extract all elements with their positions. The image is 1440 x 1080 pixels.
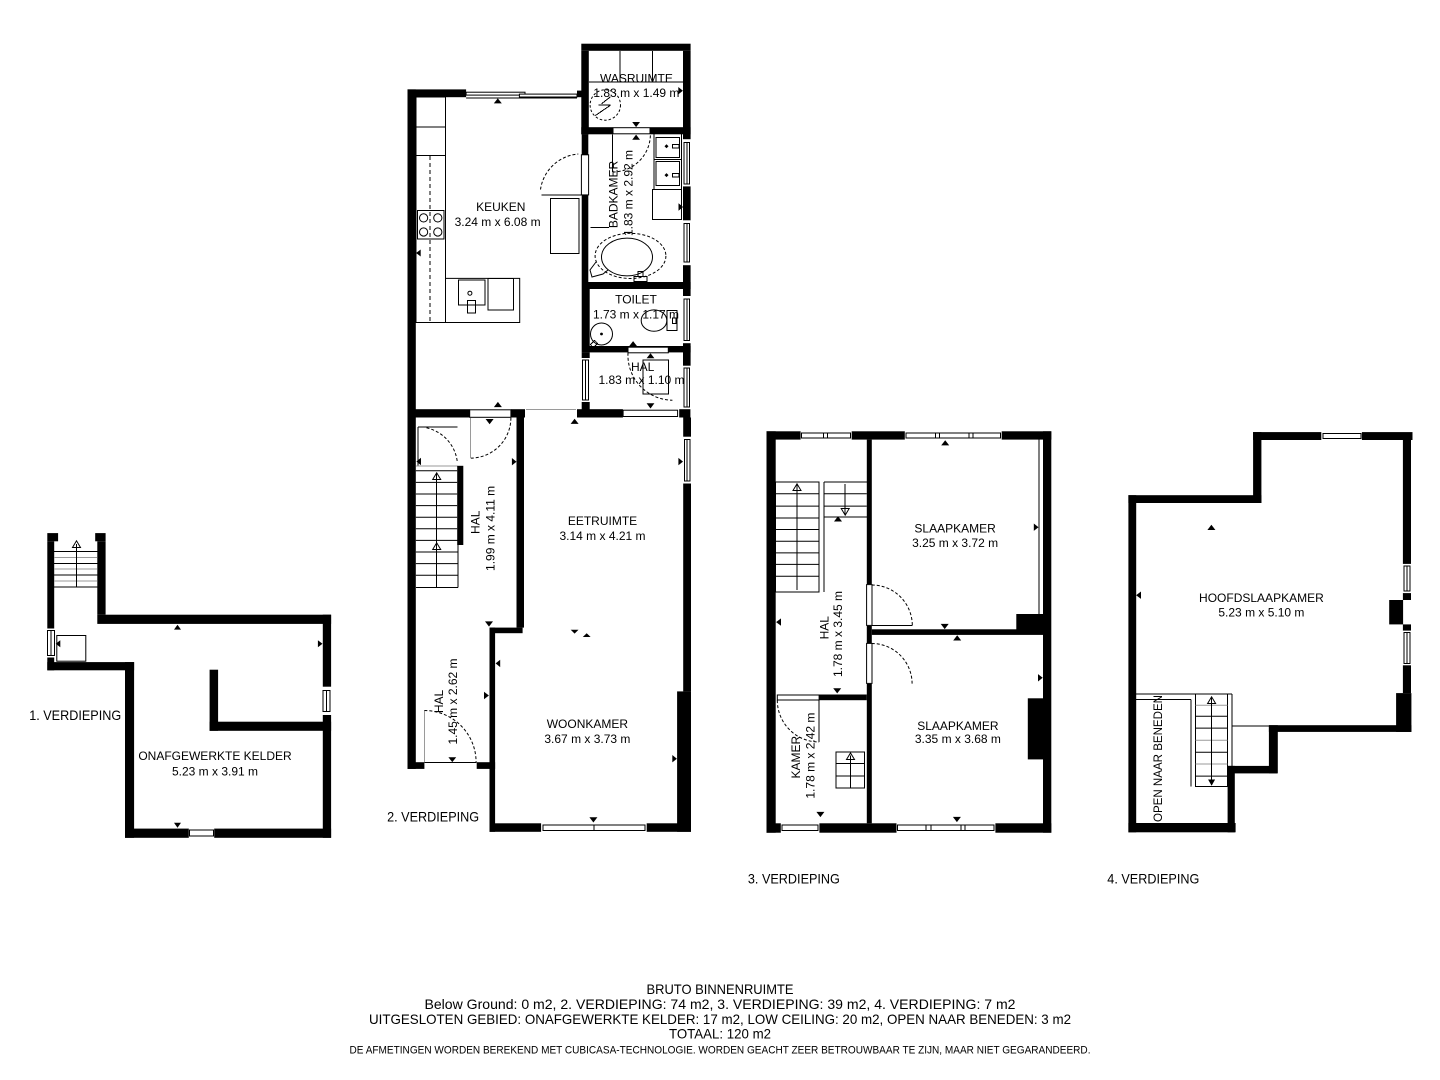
svg-text:BADKAMER: BADKAMER [606,160,620,228]
svg-text:SLAAPKAMER: SLAAPKAMER [917,719,999,733]
svg-text:ONAFGEWERKTE KELDER: ONAFGEWERKTE KELDER [138,749,292,763]
svg-text:1.99 m x 4.11 m: 1.99 m x 4.11 m [484,486,498,571]
svg-text:1.83 m x 2.92 m: 1.83 m x 2.92 m [621,150,635,236]
svg-text:5.23 m x 5.10 m: 5.23 m x 5.10 m [1218,606,1304,620]
svg-text:WASRUIMTE: WASRUIMTE [600,72,673,86]
svg-text:1.78 m x 3.45 m: 1.78 m x 3.45 m [831,591,845,677]
svg-text:HAL: HAL [432,690,446,714]
svg-text:1. VERDIEPING: 1. VERDIEPING [29,707,121,723]
svg-text:2. VERDIEPING: 2. VERDIEPING [387,808,479,824]
svg-text:1.45 m x 2.62 m: 1.45 m x 2.62 m [446,658,460,744]
svg-text:HAL: HAL [631,360,655,374]
svg-text:WOONKAMER: WOONKAMER [547,717,629,731]
svg-text:1.83 m x 1.49 m: 1.83 m x 1.49 m [593,86,679,100]
svg-text:1.78 m x 2.42 m: 1.78 m x 2.42 m [804,713,818,799]
svg-text:TOTAAL: 120 m2: TOTAAL: 120 m2 [669,1026,771,1042]
svg-text:KEUKEN: KEUKEN [476,200,525,214]
svg-text:1.83 m x 1.10 m: 1.83 m x 1.10 m [598,373,684,387]
svg-text:3.67 m x 3.73 m: 3.67 m x 3.73 m [544,732,630,746]
svg-text:3.25 m x 3.72 m: 3.25 m x 3.72 m [912,536,998,550]
svg-text:1.73 m x 1.17 m: 1.73 m x 1.17 m [593,308,679,322]
svg-text:Below Ground: 0 m2, 2. VERDIEP: Below Ground: 0 m2, 2. VERDIEPING: 74 m2… [425,996,1016,1012]
svg-text:HAL: HAL [817,616,831,640]
svg-text:SLAAPKAMER: SLAAPKAMER [914,522,996,536]
svg-text:OPEN NAAR BENEDEN: OPEN NAAR BENEDEN [1151,695,1165,822]
svg-text:DE AFMETINGEN WORDEN BEREKEND: DE AFMETINGEN WORDEN BEREKEND MET CUBICA… [350,1044,1091,1056]
svg-text:KAMER: KAMER [789,736,803,779]
svg-text:BRUTO BINNENRUIMTE: BRUTO BINNENRUIMTE [647,981,794,997]
svg-text:EETRUIMTE: EETRUIMTE [568,514,637,528]
svg-text:HAL: HAL [469,510,483,534]
svg-text:3.14 m x 4.21 m: 3.14 m x 4.21 m [559,529,645,543]
svg-text:3.24 m x 6.08 m: 3.24 m x 6.08 m [455,215,541,229]
svg-text:4. VERDIEPING: 4. VERDIEPING [1107,871,1199,887]
svg-text:HOOFDSLAAPKAMER: HOOFDSLAAPKAMER [1199,591,1324,605]
svg-text:TOILET: TOILET [615,293,657,307]
svg-text:3.35 m x 3.68 m: 3.35 m x 3.68 m [915,732,1001,746]
svg-text:3. VERDIEPING: 3. VERDIEPING [748,871,840,887]
svg-text:5.23 m x 3.91 m: 5.23 m x 3.91 m [172,764,258,778]
